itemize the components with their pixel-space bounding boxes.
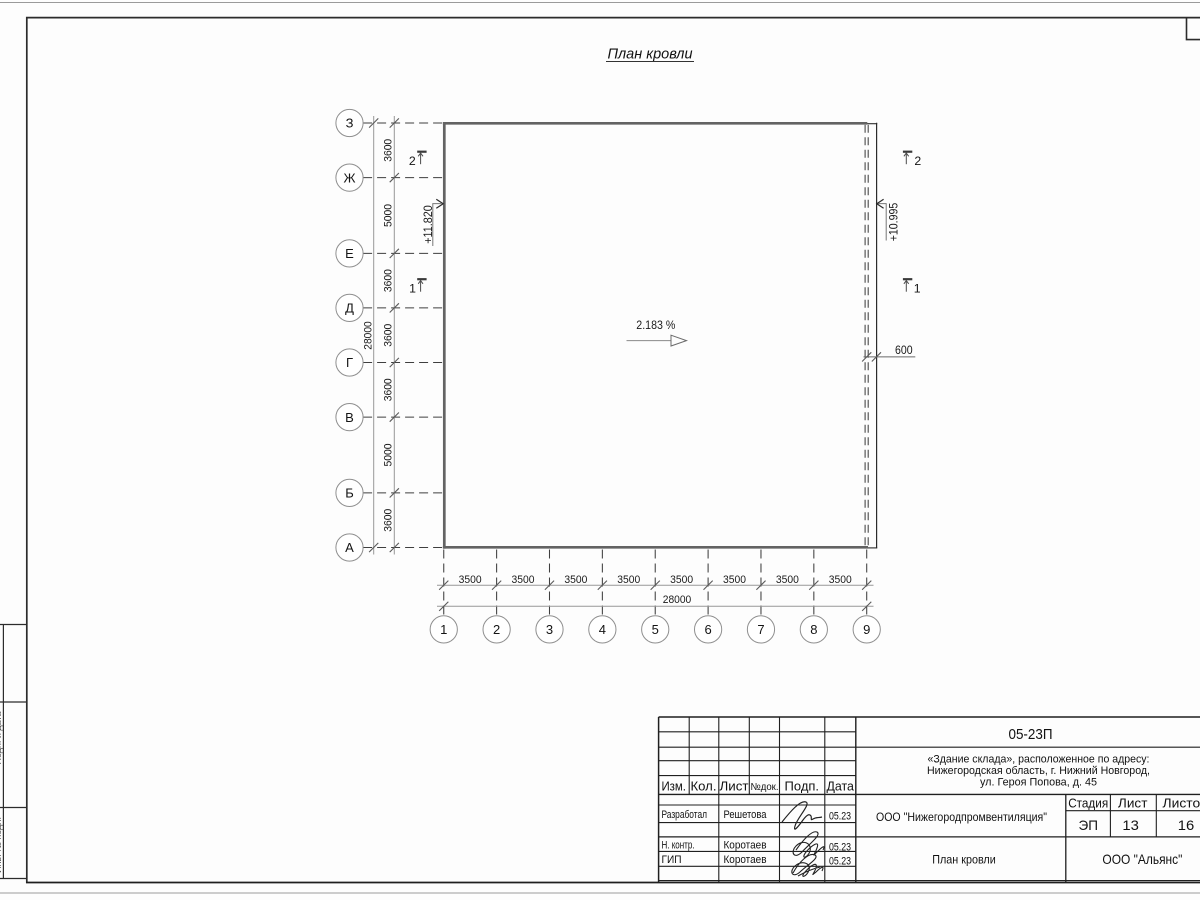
svg-text:Стадия: Стадия [1068, 796, 1108, 811]
svg-text:Дата: Дата [826, 779, 854, 794]
svg-text:+10.995: +10.995 [886, 202, 900, 241]
svg-text:ул. Героя Попова, д. 45: ул. Героя Попова, д. 45 [980, 776, 1097, 788]
svg-text:Подп. и дата: Подп. и дата [0, 711, 3, 764]
svg-text:+11.820: +11.820 [421, 205, 435, 244]
svg-text:Д: Д [345, 301, 354, 316]
svg-text:3: 3 [546, 622, 553, 637]
svg-text:А: А [345, 540, 354, 555]
svg-text:3500: 3500 [776, 574, 799, 586]
svg-text:8: 8 [810, 622, 817, 637]
svg-text:Решетова: Решетова [724, 809, 768, 821]
svg-text:5000: 5000 [383, 444, 395, 467]
svg-text:3500: 3500 [829, 574, 852, 586]
svg-text:9: 9 [863, 622, 870, 637]
svg-text:ООО "Нижегородпромвентиляция": ООО "Нижегородпромвентиляция" [876, 810, 1047, 824]
svg-text:З: З [346, 116, 354, 131]
svg-text:Инв. № подл.: Инв. № подл. [0, 817, 3, 873]
svg-text:Разработал: Разработал [662, 809, 708, 821]
svg-text:Б: Б [345, 486, 354, 501]
svg-text:2: 2 [409, 154, 416, 168]
svg-text:7: 7 [757, 622, 764, 637]
svg-text:«Здание склада», расположенное: «Здание склада», расположенное по адресу… [928, 754, 1150, 766]
svg-text:05-23П: 05-23П [1009, 726, 1053, 743]
svg-text:3500: 3500 [459, 574, 482, 586]
svg-text:3600: 3600 [383, 269, 395, 292]
svg-text:05.23: 05.23 [829, 841, 851, 853]
svg-text:5: 5 [652, 622, 659, 637]
svg-text:Подп.: Подп. [785, 779, 820, 794]
svg-text:05.23: 05.23 [829, 856, 851, 868]
svg-text:3600: 3600 [383, 378, 395, 401]
svg-text:Кол.: Кол. [691, 779, 717, 794]
svg-text:5000: 5000 [383, 204, 395, 227]
svg-text:2: 2 [493, 622, 500, 637]
svg-text:№док.: №док. [751, 782, 779, 793]
svg-text:2.183 %: 2.183 % [636, 318, 675, 332]
svg-text:28000: 28000 [362, 321, 374, 350]
svg-text:Г: Г [346, 355, 353, 370]
svg-text:Лист: Лист [720, 779, 749, 794]
svg-text:ООО "Альянс": ООО "Альянс" [1102, 852, 1182, 867]
svg-text:3500: 3500 [564, 574, 587, 586]
svg-text:1: 1 [440, 622, 447, 637]
svg-text:16: 16 [1178, 817, 1195, 833]
svg-text:План кровли: План кровли [607, 47, 692, 63]
svg-text:Е: Е [345, 246, 354, 261]
svg-text:Н. контр.: Н. контр. [662, 839, 695, 851]
svg-text:13: 13 [1122, 817, 1139, 833]
svg-text:Коротаев: Коротаев [724, 839, 767, 851]
svg-text:Ж: Ж [343, 170, 355, 185]
svg-text:1: 1 [409, 282, 416, 296]
svg-text:3600: 3600 [383, 139, 395, 162]
svg-text:2: 2 [914, 154, 921, 168]
svg-text:600: 600 [895, 343, 913, 357]
svg-text:ГИП: ГИП [662, 854, 682, 866]
svg-text:3500: 3500 [617, 574, 640, 586]
svg-text:3500: 3500 [723, 574, 746, 586]
svg-text:В: В [345, 410, 354, 425]
svg-text:Лист: Лист [1118, 796, 1148, 811]
svg-text:05.23: 05.23 [829, 811, 851, 823]
svg-text:3500: 3500 [670, 574, 693, 586]
svg-text:1: 1 [914, 282, 921, 296]
svg-text:3500: 3500 [512, 574, 535, 586]
svg-text:3600: 3600 [383, 324, 395, 347]
svg-text:Изм.: Изм. [661, 779, 686, 794]
svg-text:ЭП: ЭП [1078, 817, 1098, 833]
svg-text:Листов: Листов [1163, 796, 1200, 811]
svg-text:3600: 3600 [383, 509, 395, 532]
svg-text:Нижегородская область, г. Нижн: Нижегородская область, г. Нижний Новгоро… [927, 765, 1150, 777]
svg-text:План кровли: План кровли [932, 853, 996, 867]
svg-text:4: 4 [599, 622, 606, 637]
svg-text:Коротаев: Коротаев [724, 854, 767, 866]
svg-text:6: 6 [704, 622, 711, 637]
svg-text:28000: 28000 [663, 594, 692, 606]
